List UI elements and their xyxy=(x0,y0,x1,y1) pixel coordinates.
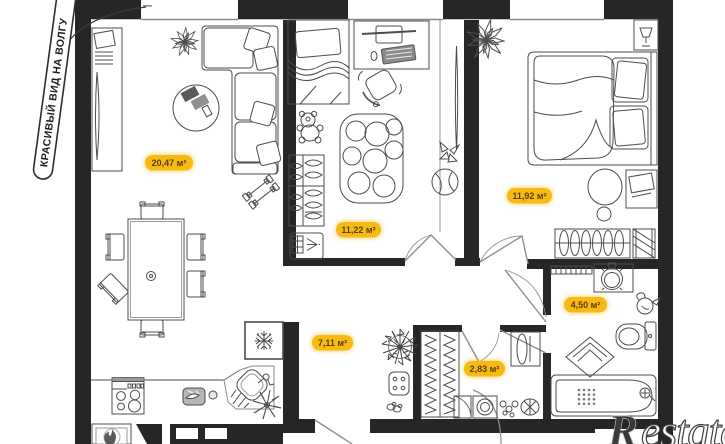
svg-text:11,92 м²: 11,92 м² xyxy=(512,191,546,201)
svg-text:11,22 м²: 11,22 м² xyxy=(341,225,375,235)
svg-text:estate: estate xyxy=(641,406,725,444)
svg-text:R: R xyxy=(607,406,638,444)
svg-text:7,11 м²: 7,11 м² xyxy=(318,338,347,348)
svg-text:2,83 м²: 2,83 м² xyxy=(470,364,500,374)
svg-text:20,47 м²: 20,47 м² xyxy=(152,158,187,168)
svg-text:4,50 м²: 4,50 м² xyxy=(571,300,601,310)
